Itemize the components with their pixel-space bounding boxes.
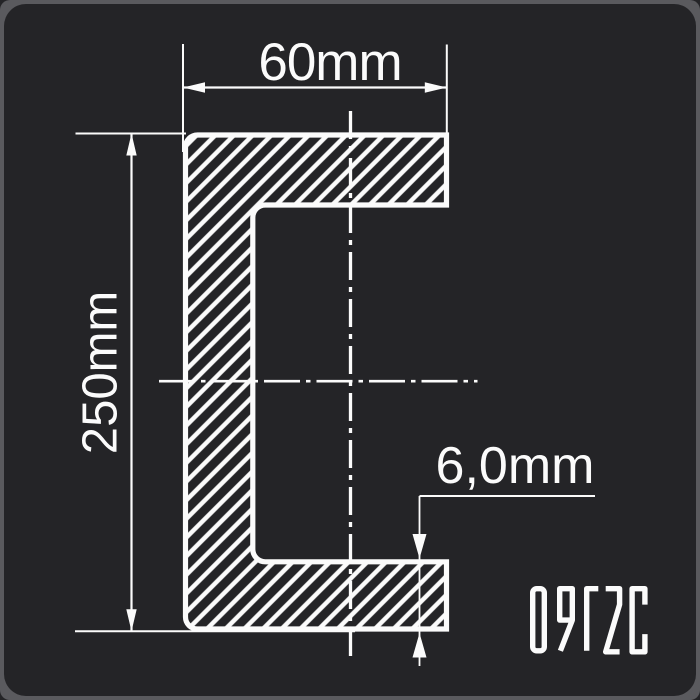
svg-text:250mm: 250mm (74, 291, 128, 454)
svg-text:60mm: 60mm (258, 33, 401, 92)
svg-text:6,0mm: 6,0mm (436, 437, 595, 495)
